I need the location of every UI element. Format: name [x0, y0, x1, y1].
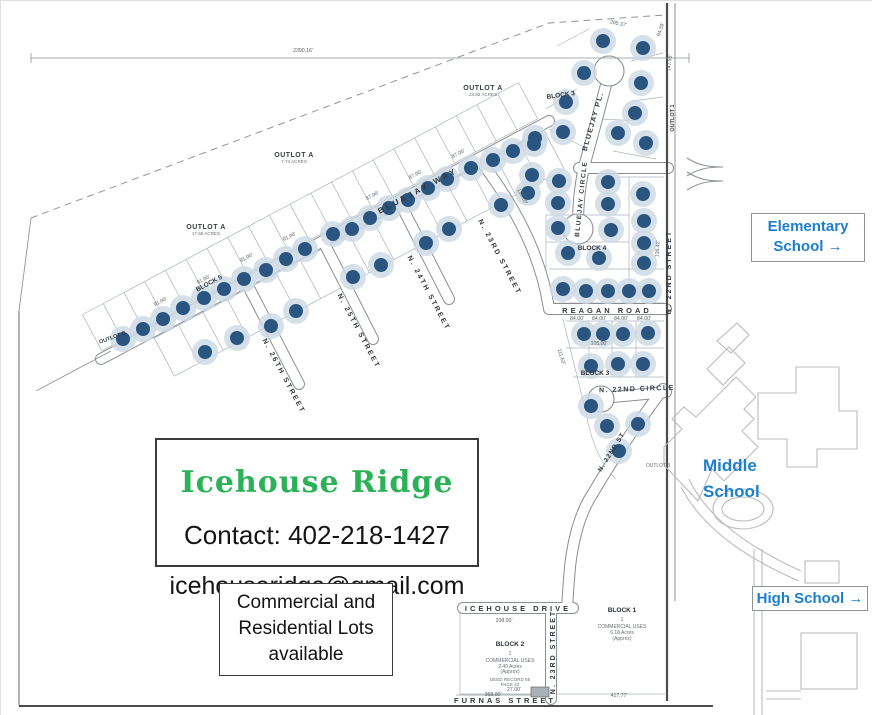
lot-marker[interactable] — [628, 106, 642, 120]
icehouse-ridge-plat-flyer: BLUEJAY WAYN. 26TH STREETN. 25TH STREETN… — [0, 0, 872, 715]
map-label: BLOCK 1 — [608, 607, 637, 614]
lot-marker[interactable] — [596, 327, 610, 341]
lot-marker[interactable] — [506, 144, 520, 158]
lot-marker[interactable] — [604, 223, 618, 237]
street-label: REAGAN ROAD — [562, 306, 652, 315]
availability-box: Commercial and Residential Lots availabl… — [219, 583, 393, 676]
cul-de-sac-top — [594, 56, 624, 86]
lot-marker[interactable] — [230, 331, 244, 345]
lot-marker[interactable] — [289, 304, 303, 318]
lot-marker[interactable] — [600, 419, 614, 433]
lot-marker[interactable] — [217, 282, 231, 296]
street-label: FURNAS STREET — [454, 696, 556, 705]
dimension-label: 368.00' — [485, 692, 502, 698]
lot-marker[interactable] — [363, 211, 377, 225]
dimension-label: 91.00' — [239, 252, 254, 264]
map-label: BLOCK 3 — [581, 370, 610, 377]
lot-marker[interactable] — [636, 41, 650, 55]
map-label: 17.65 ACRES — [192, 231, 220, 236]
street-label: N. 23RD STREET — [476, 218, 522, 296]
lot-marker[interactable] — [584, 399, 598, 413]
map-label: OUTLOT A — [186, 224, 226, 231]
dimension-label: 136.42' — [654, 240, 661, 257]
dimension-label: 147.55' — [666, 54, 674, 71]
map-label: 23.92 ACRES — [469, 92, 497, 97]
dimension-label: 84.00' — [592, 316, 606, 322]
lot-marker[interactable] — [298, 242, 312, 256]
dimension-label: 2390.16' — [293, 48, 313, 54]
lot-marker[interactable] — [634, 76, 648, 90]
dimension-label: 417.77' — [611, 693, 628, 699]
map-label: OUTLOT 1 — [670, 104, 676, 131]
dimension-label: 87.00' — [365, 190, 380, 202]
map-label: 1 — [621, 617, 624, 623]
map-label: BLOCK 2 — [496, 641, 525, 648]
lot-marker[interactable] — [637, 236, 651, 250]
lot-marker[interactable] — [156, 312, 170, 326]
lot-marker[interactable] — [326, 227, 340, 241]
lot-marker[interactable] — [556, 125, 570, 139]
lot-marker[interactable] — [259, 263, 273, 277]
map-label: OUTLOT 3 — [646, 463, 671, 469]
lot-marker[interactable] — [636, 357, 650, 371]
dimension-label: 94.39' — [656, 22, 666, 37]
lot-marker[interactable] — [622, 284, 636, 298]
lot-marker[interactable] — [551, 221, 565, 235]
dimension-label: 208.00' — [496, 618, 513, 624]
lot-marker[interactable] — [637, 214, 651, 228]
contact-phone: Contact: 402-218-1427 — [157, 520, 477, 551]
street-label: N. 23RD STREET — [550, 610, 557, 694]
elementary-school-label: Elementary School → — [751, 213, 865, 262]
lot-marker[interactable] — [636, 187, 650, 201]
map-label: OUTLOT A — [274, 152, 314, 159]
dimension-label: 84.00' — [637, 316, 651, 322]
dimension-label: 105.00' — [591, 341, 608, 347]
lot-marker[interactable] — [419, 236, 433, 250]
lot-marker[interactable] — [525, 168, 539, 182]
lot-marker[interactable] — [611, 126, 625, 140]
lot-marker[interactable] — [577, 327, 591, 341]
lot-marker[interactable] — [198, 345, 212, 359]
lot-marker[interactable] — [237, 272, 251, 286]
lot-marker[interactable] — [136, 322, 150, 336]
road-continuation-flares — [687, 158, 723, 190]
lot-marker[interactable] — [552, 174, 566, 188]
west-diagonal-boundary — [19, 218, 111, 391]
lot-marker[interactable] — [528, 131, 542, 145]
development-title: Icehouse Ridge — [157, 465, 477, 500]
lot-marker[interactable] — [279, 252, 293, 266]
lot-marker[interactable] — [601, 175, 615, 189]
lot-marker[interactable] — [641, 326, 655, 340]
dimension-label: 84.00' — [570, 316, 584, 322]
lot-marker[interactable] — [345, 222, 359, 236]
lot-marker[interactable] — [494, 198, 508, 212]
lot-marker[interactable] — [551, 196, 565, 210]
lot-marker[interactable] — [637, 256, 651, 270]
lot-marker[interactable] — [579, 284, 593, 298]
dimension-label: 84.00' — [614, 316, 628, 322]
map-label: (Approx) — [612, 636, 632, 642]
lot-marker[interactable] — [374, 258, 388, 272]
lot-marker[interactable] — [561, 246, 575, 260]
lot-marker[interactable] — [631, 417, 645, 431]
map-label: OUTLOT A — [463, 85, 503, 92]
lot-marker[interactable] — [556, 282, 570, 296]
map-label: 1 — [509, 651, 512, 657]
survey-dimension-line — [31, 53, 689, 63]
school-building-outlines — [664, 323, 857, 715]
lot-marker[interactable] — [486, 153, 500, 167]
lot-marker[interactable] — [176, 301, 190, 315]
lot-marker[interactable] — [264, 319, 278, 333]
lot-marker[interactable] — [596, 34, 610, 48]
lot-marker[interactable] — [592, 251, 606, 265]
lot-marker[interactable] — [611, 357, 625, 371]
lot-marker[interactable] — [346, 270, 360, 284]
lot-marker[interactable] — [577, 66, 591, 80]
high-school-label: High School → — [752, 586, 868, 611]
lot-marker[interactable] — [642, 284, 656, 298]
lot-marker[interactable] — [639, 136, 653, 150]
dimension-label: 205.37' — [609, 19, 627, 28]
dimension-label: 111.63' — [556, 348, 567, 365]
lot-marker[interactable] — [464, 161, 478, 175]
lot-marker[interactable] — [197, 291, 211, 305]
lot-marker[interactable] — [616, 327, 630, 341]
map-label: (Approx) — [500, 669, 520, 675]
lot-marker[interactable] — [601, 197, 615, 211]
map-label: BLOCK 4 — [578, 245, 607, 252]
middle-school-label: Middle School — [703, 453, 760, 504]
street-label: N. 22ND STREET — [666, 230, 673, 314]
lot-marker[interactable] — [442, 222, 456, 236]
dimension-label: 27.00' — [507, 687, 521, 693]
map-label: 7.74 ACRES — [281, 159, 307, 164]
lot-marker[interactable] — [601, 284, 615, 298]
contact-info-box: Icehouse Ridge Contact: 402-218-1427 ice… — [155, 438, 479, 567]
